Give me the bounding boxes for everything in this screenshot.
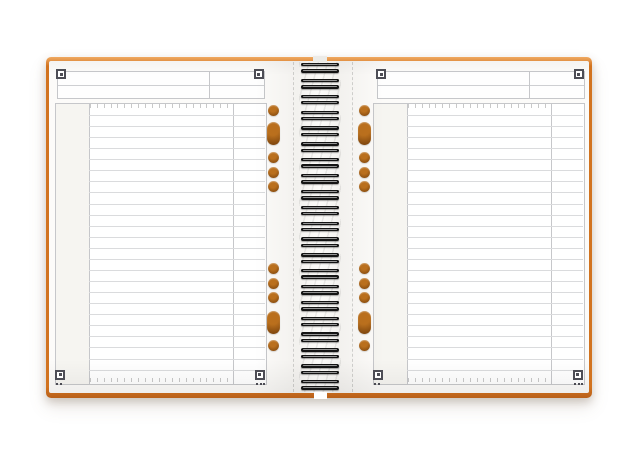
binding-hole [268, 152, 279, 163]
tick-mark [213, 104, 214, 108]
tick-mark [504, 104, 505, 108]
tick-mark [456, 378, 457, 382]
tick-mark [90, 104, 91, 108]
tick-mark [435, 378, 436, 382]
tick-mark [477, 378, 478, 382]
binding-notch-bottom [314, 392, 327, 399]
binding-hole [268, 181, 279, 192]
binding-hole [268, 340, 279, 351]
scan-corner-dot [378, 383, 380, 385]
spiral-coil [301, 269, 339, 280]
tick-mark [117, 104, 118, 108]
right-column-divider [233, 104, 234, 384]
tick-mark [131, 378, 132, 382]
spiral-coil [301, 158, 339, 169]
ruled-line [89, 137, 265, 138]
tick-mark [104, 378, 105, 382]
ruled-line [89, 181, 265, 182]
coil-wire-bottom [301, 69, 339, 72]
tick-mark [504, 378, 505, 382]
ruled-line [89, 303, 265, 304]
coil-wire-bottom [301, 164, 339, 167]
ruled-line [407, 148, 583, 149]
title-field-box-right [377, 71, 585, 99]
ruled-line [407, 336, 583, 337]
coil-wire-top [301, 285, 339, 288]
coil-wire-top [301, 380, 339, 383]
tick-mark [220, 378, 221, 382]
ruled-line [407, 181, 583, 182]
margin-column [56, 104, 90, 384]
tick-mark [511, 378, 512, 382]
coil-wire-top [301, 348, 339, 351]
coil-wire-bottom [301, 85, 339, 88]
coil-wire-top [301, 158, 339, 161]
tick-mark [227, 378, 228, 382]
ruled-line [89, 159, 265, 160]
coil-wire-bottom [301, 339, 339, 342]
scan-corner-inner [576, 71, 582, 77]
tick-mark [545, 104, 546, 108]
tick-mark [524, 378, 525, 382]
ruled-area-left [55, 103, 267, 385]
scan-corner-inner [257, 372, 263, 378]
scan-corner-inner [575, 372, 581, 378]
tick-mark [213, 378, 214, 382]
ruled-line [407, 292, 583, 293]
coil-wire-bottom [301, 180, 339, 183]
coil-wire-top [301, 79, 339, 82]
coil-wire-bottom [301, 149, 339, 152]
tick-mark [415, 378, 416, 382]
scan-corner-dot [56, 383, 58, 385]
coil-wire-bottom [301, 133, 339, 136]
ruled-line [407, 248, 583, 249]
spiral-coil [301, 206, 339, 217]
tick-mark [206, 378, 207, 382]
binding-hole [359, 105, 370, 116]
tick-mark [463, 378, 464, 382]
ruled-line [89, 148, 265, 149]
coil-wire-top [301, 190, 339, 193]
coil-wire-top [301, 332, 339, 335]
tick-mark [415, 104, 416, 108]
ruled-line [407, 237, 583, 238]
coil-wire-top [301, 95, 339, 98]
tick-mark [97, 104, 98, 108]
binding-hole-pill [267, 122, 280, 145]
binding-hole-pill [358, 122, 371, 145]
scan-corner-inner [256, 71, 262, 77]
tick-mark [179, 378, 180, 382]
binding-hole [359, 152, 370, 163]
ruled-line [89, 226, 265, 227]
scan-corner-icon [255, 370, 265, 380]
ruled-line [407, 159, 583, 160]
tick-mark [97, 378, 98, 382]
scan-corner-dot [60, 383, 62, 385]
spiral-coil [301, 95, 339, 106]
coil-wire-bottom [301, 323, 339, 326]
binding-hole [359, 263, 370, 274]
ruled-line [89, 325, 265, 326]
spiral-coil [301, 174, 339, 185]
coil-wire-top [301, 111, 339, 114]
tick-mark [531, 104, 532, 108]
ruled-line [89, 314, 265, 315]
tick-mark [131, 104, 132, 108]
scan-corner-inner [378, 71, 384, 77]
scan-corner-core [577, 73, 580, 76]
tick-mark [483, 104, 484, 108]
ruled-line [89, 204, 265, 205]
tick-mark [152, 378, 153, 382]
binding-notch-top [313, 56, 327, 62]
tick-mark [200, 378, 201, 382]
tick-mark [193, 104, 194, 108]
coil-wire-bottom [301, 212, 339, 215]
ruled-line [89, 370, 265, 371]
binding-hole [268, 292, 279, 303]
spiral-coil [301, 142, 339, 153]
scan-corner-core [576, 373, 579, 376]
ruled-line [407, 303, 583, 304]
spiral-coil [301, 317, 339, 328]
ruled-line [407, 126, 583, 127]
tick-mark [470, 378, 471, 382]
tick-mark [422, 378, 423, 382]
ruled-line [407, 325, 583, 326]
scan-corner-core [258, 373, 261, 376]
binding-hole [359, 278, 370, 289]
scan-corner-core [380, 73, 383, 76]
ruled-line [89, 248, 265, 249]
title-box-horizontal-divider [378, 85, 584, 86]
product-photo-scene [0, 0, 640, 457]
tick-mark [117, 378, 118, 382]
coil-wire-bottom [301, 260, 339, 263]
tick-mark [200, 104, 201, 108]
spiral-coil [301, 222, 339, 233]
tick-mark [138, 378, 139, 382]
ruled-line [89, 192, 265, 193]
binding-hole [359, 181, 370, 192]
tick-mark [111, 104, 112, 108]
spiral-coil [301, 301, 339, 312]
tick-mark [124, 104, 125, 108]
ruled-line [89, 292, 265, 293]
coil-wire-top [301, 364, 339, 367]
tick-mark [408, 104, 409, 108]
tick-mark [518, 104, 519, 108]
ruled-line [407, 226, 583, 227]
title-box-horizontal-divider [58, 85, 264, 86]
coil-wire-bottom [301, 307, 339, 310]
ruled-line [407, 115, 583, 116]
scan-corner-dot [263, 383, 265, 385]
tick-mark [435, 104, 436, 108]
coil-wire-bottom [301, 228, 339, 231]
tick-mark [206, 104, 207, 108]
spiral-coil [301, 126, 339, 137]
spiral-coil [301, 111, 339, 122]
tick-mark [538, 378, 539, 382]
coil-wire-top [301, 237, 339, 240]
coil-wire-bottom [301, 291, 339, 294]
tick-mark [497, 378, 498, 382]
spiral-coil [301, 253, 339, 264]
tick-mark [90, 378, 91, 382]
tick-mark [111, 378, 112, 382]
tick-mark [165, 104, 166, 108]
coil-wire-bottom [301, 371, 339, 374]
tick-mark [186, 378, 187, 382]
scan-corner-icon [373, 370, 383, 380]
coil-wire-bottom [301, 355, 339, 358]
coil-wire-top [301, 269, 339, 272]
scan-corner-dot [374, 383, 376, 385]
scan-corner-core [257, 73, 260, 76]
spiral-coil [301, 332, 339, 343]
tick-mark [124, 378, 125, 382]
ruled-line [89, 270, 265, 271]
right-column-divider [551, 104, 552, 384]
ruled-line [407, 192, 583, 193]
binding-hole [359, 292, 370, 303]
tick-mark [220, 104, 221, 108]
ruled-line [407, 270, 583, 271]
coil-wire-bottom [301, 117, 339, 120]
ruled-line [89, 115, 265, 116]
scan-corner-core [377, 373, 380, 376]
coil-wire-top [301, 206, 339, 209]
scan-corner-inner [57, 372, 63, 378]
ruled-line [89, 347, 265, 348]
binding-hole [359, 167, 370, 178]
tick-mark [159, 104, 160, 108]
tick-mark [172, 378, 173, 382]
coil-wire-top [301, 142, 339, 145]
ruled-line [407, 137, 583, 138]
tick-mark [490, 378, 491, 382]
perforation-line-left [293, 62, 294, 392]
spiral-coil [301, 79, 339, 90]
tick-mark [442, 104, 443, 108]
ruled-line [407, 370, 583, 371]
spiral-coil [301, 348, 339, 359]
ruled-line [89, 281, 265, 282]
tick-mark [497, 104, 498, 108]
ruled-line [89, 259, 265, 260]
tick-mark [429, 104, 430, 108]
tick-mark [463, 104, 464, 108]
binding-hole-pill [267, 311, 280, 334]
coil-wire-top [301, 301, 339, 304]
scan-corner-dot [260, 383, 262, 385]
scan-corner-icon [376, 69, 386, 79]
tick-mark [429, 378, 430, 382]
tick-mark [483, 378, 484, 382]
tick-mark [179, 104, 180, 108]
coil-wire-bottom [301, 196, 339, 199]
tick-mark [518, 378, 519, 382]
tick-mark [449, 104, 450, 108]
tick-mark [524, 104, 525, 108]
perforation-line-right [352, 62, 353, 392]
scan-corner-icon [574, 69, 584, 79]
spiral-coil [301, 285, 339, 296]
spiral-coil [301, 237, 339, 248]
tick-mark [456, 104, 457, 108]
binding-hole [359, 340, 370, 351]
scan-corner-icon [254, 69, 264, 79]
coil-wire-top [301, 222, 339, 225]
scan-corner-icon [56, 69, 66, 79]
ruled-line [407, 359, 583, 360]
tick-mark [193, 378, 194, 382]
tick-mark [538, 104, 539, 108]
coil-wire-top [301, 63, 339, 66]
title-field-box-left [57, 71, 265, 99]
tick-mark [449, 378, 450, 382]
ruled-area-right [373, 103, 585, 385]
ruled-line [407, 215, 583, 216]
tick-mark [159, 378, 160, 382]
coil-wire-bottom [301, 101, 339, 104]
tick-mark [186, 104, 187, 108]
coil-wire-top [301, 317, 339, 320]
binding-hole [268, 167, 279, 178]
spiral-coil [301, 190, 339, 201]
tick-mark [152, 104, 153, 108]
tick-mark [138, 104, 139, 108]
tick-mark [145, 378, 146, 382]
coil-wire-bottom [301, 244, 339, 247]
scan-corner-inner [58, 71, 64, 77]
binding-hole [268, 105, 279, 116]
tick-mark [422, 104, 423, 108]
tick-mark [531, 378, 532, 382]
ruled-line [89, 336, 265, 337]
scan-corner-inner [375, 372, 381, 378]
ruled-line [89, 126, 265, 127]
scan-corner-core [59, 373, 62, 376]
margin-column [374, 104, 408, 384]
tick-mark [104, 104, 105, 108]
tick-mark [490, 104, 491, 108]
scan-corner-dot [581, 383, 583, 385]
binding-hole [268, 278, 279, 289]
ruled-line [407, 259, 583, 260]
scan-corner-dot [574, 383, 576, 385]
coil-wire-bottom [301, 386, 339, 389]
binding-hole [268, 263, 279, 274]
tick-mark [172, 104, 173, 108]
coil-wire-top [301, 174, 339, 177]
coil-wire-top [301, 253, 339, 256]
scan-corner-dot [256, 383, 258, 385]
spiral-coil [301, 380, 339, 391]
ruled-line [407, 204, 583, 205]
ruled-line [407, 170, 583, 171]
spiral-coil [301, 364, 339, 375]
tick-mark [165, 378, 166, 382]
tick-mark [545, 378, 546, 382]
ruled-line [89, 237, 265, 238]
scan-corner-icon [573, 370, 583, 380]
scan-corner-icon [55, 370, 65, 380]
tick-mark [477, 104, 478, 108]
tick-mark [442, 378, 443, 382]
tick-mark [145, 104, 146, 108]
scan-corner-dot [578, 383, 580, 385]
tick-mark [511, 104, 512, 108]
tick-mark [408, 378, 409, 382]
ruled-line [407, 281, 583, 282]
ruled-line [407, 314, 583, 315]
coil-wire-top [301, 126, 339, 129]
ruled-line [89, 170, 265, 171]
ruled-line [89, 215, 265, 216]
tick-mark [227, 104, 228, 108]
ruled-line [89, 359, 265, 360]
binding-hole-pill [358, 311, 371, 334]
spiral-coil [301, 63, 339, 74]
ruled-line [407, 347, 583, 348]
scan-corner-core [60, 73, 63, 76]
coil-wire-bottom [301, 275, 339, 278]
tick-mark [470, 104, 471, 108]
